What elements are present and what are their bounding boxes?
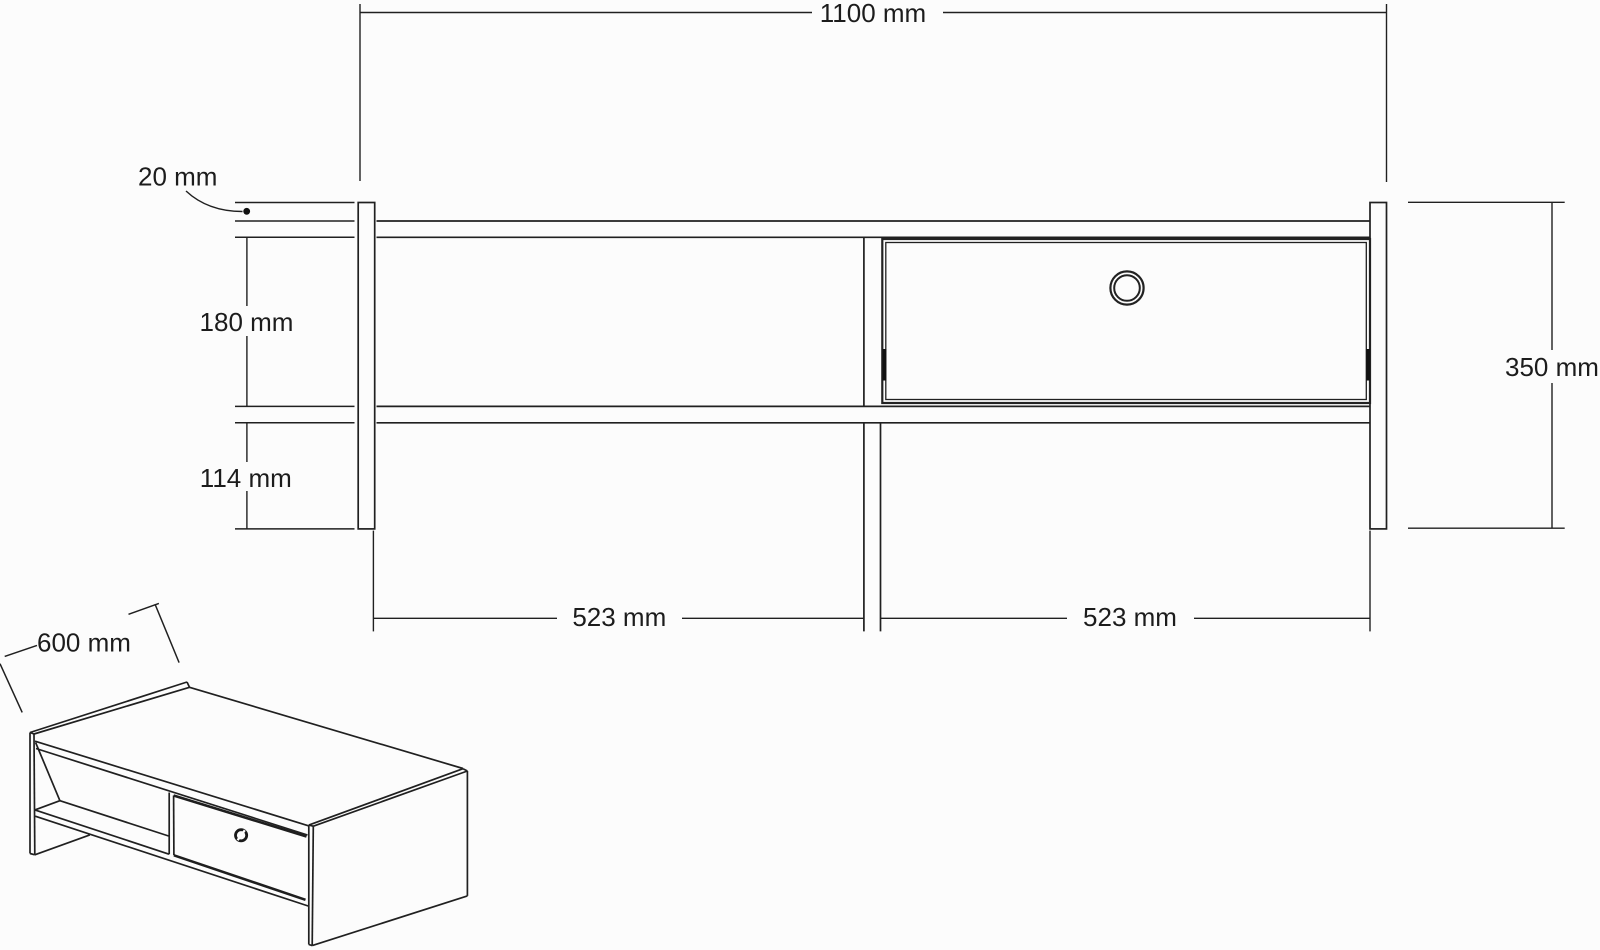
- svg-text:20 mm: 20 mm: [138, 162, 217, 192]
- svg-text:114 mm: 114 mm: [200, 463, 292, 493]
- svg-text:350 mm: 350 mm: [1505, 352, 1599, 382]
- svg-text:1100 mm: 1100 mm: [820, 0, 926, 28]
- svg-text:523 mm: 523 mm: [1083, 602, 1177, 632]
- svg-text:600 mm: 600 mm: [37, 628, 131, 658]
- svg-text:180 mm: 180 mm: [200, 307, 294, 337]
- svg-text:523 mm: 523 mm: [572, 602, 666, 632]
